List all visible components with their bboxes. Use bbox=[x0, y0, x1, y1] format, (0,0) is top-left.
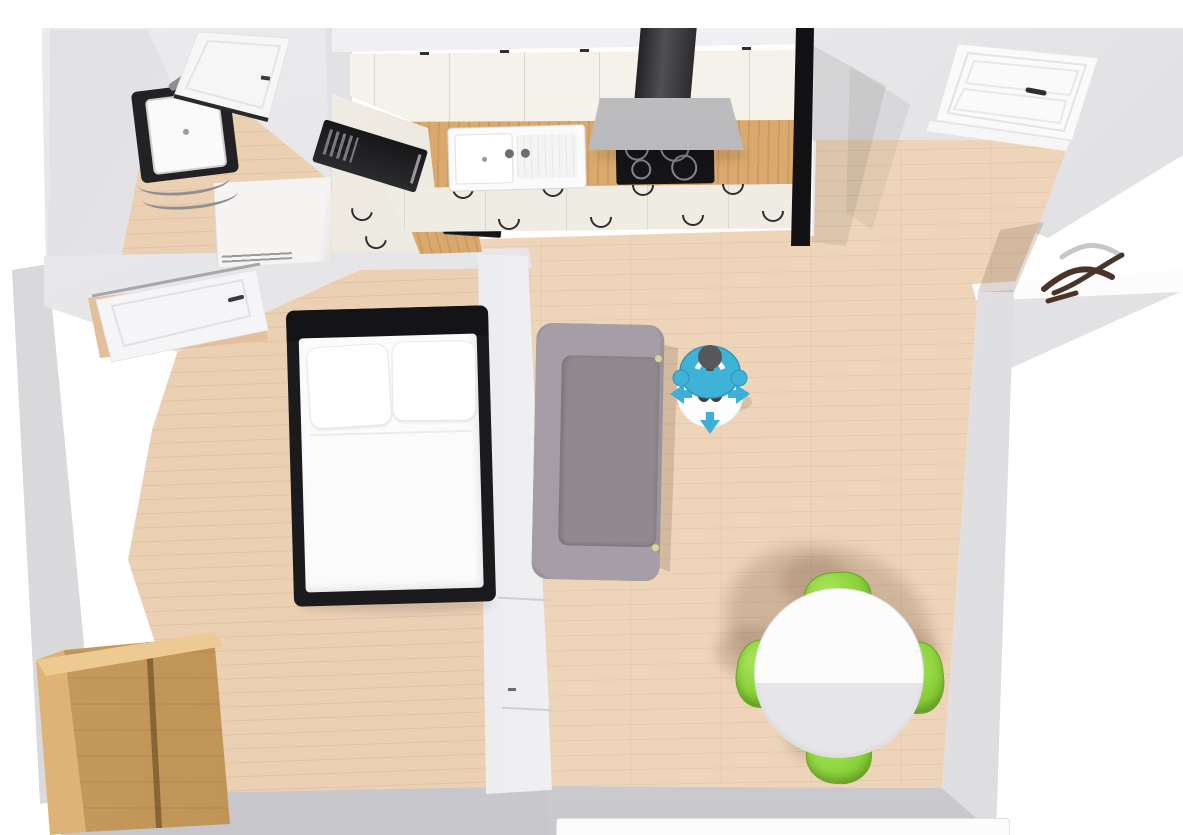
avatar-arm bbox=[731, 370, 747, 386]
cabinet-handle-tick bbox=[500, 50, 509, 53]
sink-bowl-left bbox=[454, 133, 513, 185]
sink-drain bbox=[482, 157, 487, 162]
sofa[interactable] bbox=[531, 323, 664, 582]
walkthrough-avatar[interactable] bbox=[654, 328, 770, 444]
cabinet-handle-tick bbox=[420, 52, 429, 55]
sofa-armrest-bottom bbox=[539, 543, 660, 582]
kitchen-sink[interactable] bbox=[447, 124, 587, 192]
duvet-seam bbox=[309, 430, 471, 437]
cabinet-handle-tick bbox=[742, 47, 751, 50]
floor-plan-scene bbox=[0, 0, 1183, 835]
avatar-arm bbox=[673, 370, 689, 386]
pillow-right bbox=[391, 340, 476, 421]
mattress-duvet bbox=[299, 334, 484, 593]
cabinet-handle-tick bbox=[580, 49, 589, 52]
divider-door-handle[interactable] bbox=[508, 688, 516, 691]
microwave-vents bbox=[323, 129, 359, 163]
avatar-head bbox=[698, 345, 722, 369]
coat-stand[interactable] bbox=[1024, 205, 1149, 310]
living-window-sill[interactable] bbox=[556, 818, 1010, 835]
pillow-left bbox=[306, 343, 393, 430]
sofa-leg bbox=[652, 544, 659, 551]
double-bed[interactable] bbox=[286, 305, 496, 607]
bathroom-door[interactable] bbox=[168, 24, 308, 134]
sofa-seat-cushion bbox=[558, 355, 660, 547]
entry-door[interactable] bbox=[920, 35, 1110, 155]
entry-door-handle bbox=[1028, 90, 1044, 93]
dining-table[interactable] bbox=[754, 588, 924, 758]
bedroom-door[interactable] bbox=[78, 250, 278, 370]
coat-stand-shadow bbox=[1062, 245, 1120, 257]
